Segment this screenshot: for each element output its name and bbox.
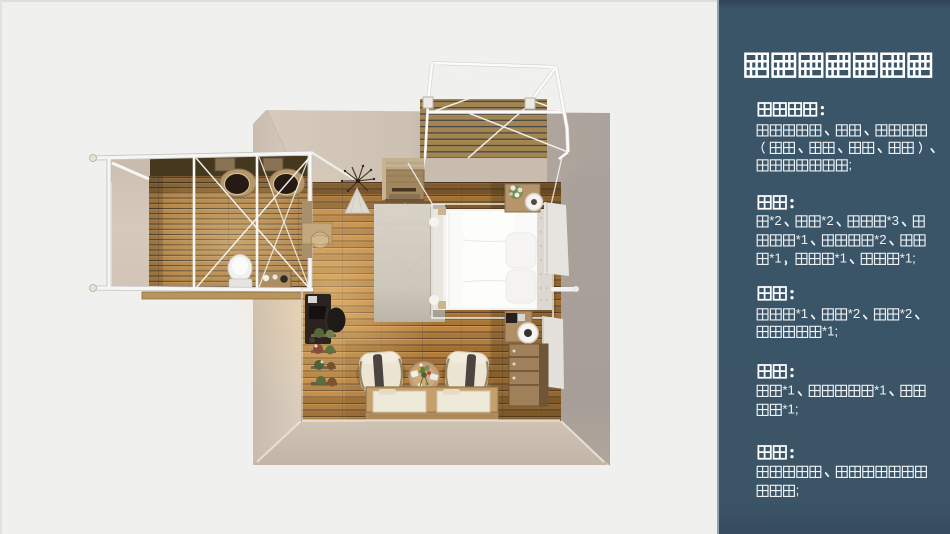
svg-text:*1: *1 [835,251,847,266]
svg-text:;: ; [796,483,800,498]
svg-text:*1;: *1; [822,324,838,339]
svg-text:*1: *1 [769,251,781,266]
svg-text:*1: *1 [796,232,808,247]
svg-text:*3: *3 [887,213,899,228]
svg-text:*1;: *1; [782,402,798,417]
svg-text:*2: *2 [848,306,860,321]
svg-text:*1: *1 [874,383,886,398]
svg-text:*1: *1 [796,306,808,321]
svg-text:*1: *1 [782,383,794,398]
svg-text:*1;: *1; [900,251,916,266]
svg-text:*2: *2 [900,306,912,321]
svg-text:*2: *2 [769,213,781,228]
svg-text:*2: *2 [874,232,886,247]
svg-text:;: ; [848,157,852,172]
svg-text:*2: *2 [821,213,833,228]
